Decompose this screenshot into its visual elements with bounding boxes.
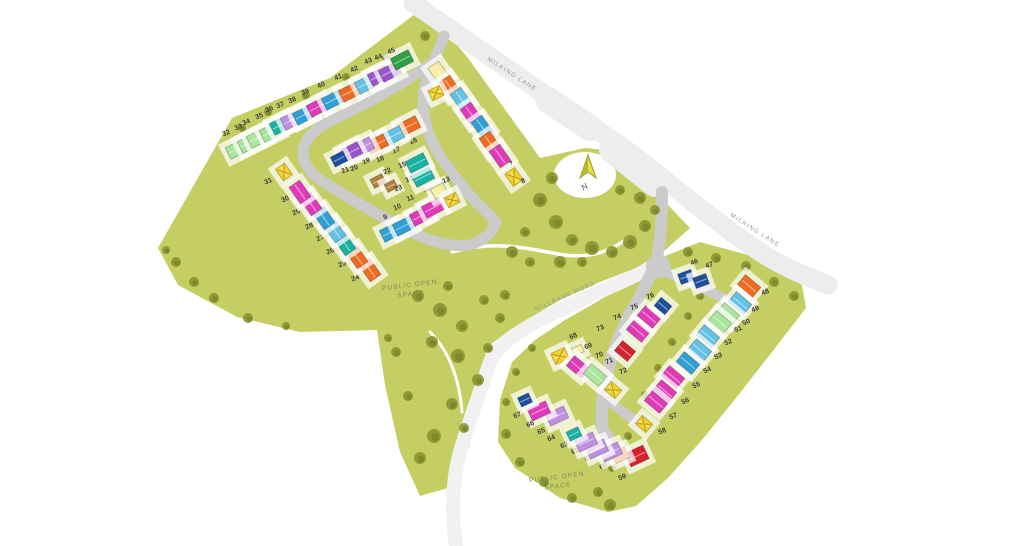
tree <box>479 295 489 305</box>
tree <box>403 391 413 401</box>
tree <box>426 336 438 348</box>
tree <box>414 452 426 464</box>
tree <box>456 320 468 332</box>
tree <box>433 303 447 317</box>
tree <box>189 277 199 287</box>
tree <box>567 493 577 503</box>
tree <box>427 429 441 443</box>
tree <box>668 338 676 346</box>
tree <box>282 322 290 330</box>
tree <box>515 457 525 467</box>
tree <box>446 398 458 410</box>
tree <box>500 290 510 300</box>
tree <box>495 313 505 323</box>
tree <box>243 313 253 323</box>
tree <box>639 220 651 232</box>
tree <box>623 235 637 249</box>
tree <box>443 281 453 291</box>
tree <box>528 344 536 352</box>
siteplan-map: 1234567891011121314151617181920212223242… <box>0 0 1024 546</box>
tree <box>593 487 603 497</box>
tree <box>606 246 618 258</box>
tree <box>420 31 430 41</box>
tree <box>162 246 170 254</box>
tree <box>634 192 646 204</box>
siteplan-canvas: 1234567891011121314151617181920212223242… <box>0 0 1024 546</box>
tree <box>451 349 465 363</box>
tree <box>512 368 520 376</box>
tree <box>506 246 518 258</box>
tree <box>554 256 566 268</box>
tree <box>472 374 484 386</box>
tree <box>549 215 563 229</box>
junction-bulb <box>646 254 670 278</box>
tree <box>501 429 511 439</box>
tree <box>384 334 392 342</box>
tree <box>711 253 721 263</box>
tree <box>391 347 401 357</box>
tree <box>209 293 219 303</box>
tree <box>604 499 616 511</box>
tree <box>566 234 578 246</box>
tree <box>520 227 530 237</box>
tree <box>615 185 625 195</box>
tree <box>525 257 535 267</box>
tree <box>546 172 558 184</box>
tree <box>533 193 547 207</box>
tree <box>769 277 779 287</box>
tree <box>502 398 510 406</box>
tree <box>624 432 632 440</box>
tree <box>171 257 181 267</box>
tree <box>577 257 587 267</box>
tree <box>789 291 799 301</box>
tree <box>483 343 493 353</box>
tree <box>683 247 693 257</box>
tree <box>585 241 599 255</box>
tree <box>684 312 692 320</box>
tree <box>650 205 660 215</box>
tree <box>459 423 469 433</box>
